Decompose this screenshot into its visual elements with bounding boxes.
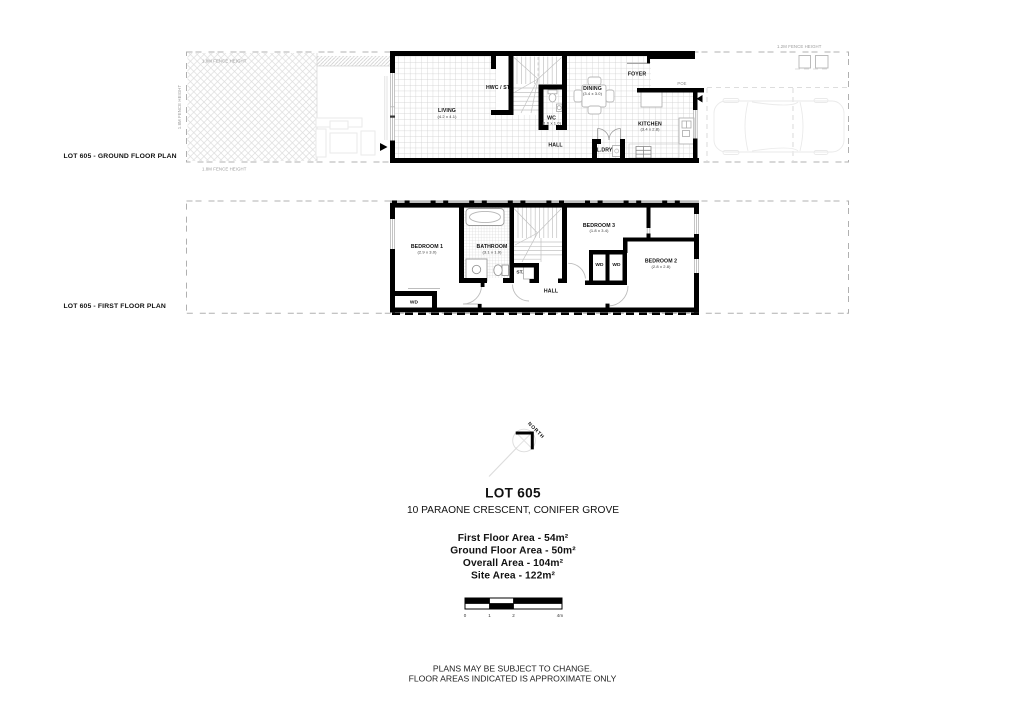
svg-text:(1.6 x 1.0): (1.6 x 1.0) [542, 121, 562, 126]
svg-text:Site Area - 122m²: Site Area - 122m² [471, 571, 555, 582]
svg-text:HALL: HALL [548, 143, 563, 149]
svg-text:FLOOR AREAS INDICATED IS APPRO: FLOOR AREAS INDICATED IS APPROXIMATE ONL… [409, 674, 617, 684]
svg-text:PLANS MAY BE SUBJECT TO CHANGE: PLANS MAY BE SUBJECT TO CHANGE. [433, 664, 592, 674]
svg-text:WD: WD [410, 300, 419, 306]
svg-text:LOT 605 - FIRST FLOOR PLAN: LOT 605 - FIRST FLOOR PLAN [64, 303, 166, 310]
svg-text:1.2M FENCE HEIGHT: 1.2M FENCE HEIGHT [777, 44, 822, 49]
svg-text:WD: WD [612, 262, 621, 268]
svg-text:(3.4 x 3.0): (3.4 x 3.0) [583, 91, 603, 96]
svg-text:1.8M FENCE HEIGHT: 1.8M FENCE HEIGHT [202, 167, 247, 172]
svg-text:(4.2 x 4.1): (4.2 x 4.1) [437, 114, 457, 119]
svg-text:First Floor Area - 54m²: First Floor Area - 54m² [458, 533, 569, 544]
svg-text:1: 1 [488, 613, 491, 618]
svg-text:1.8M FENCE HEIGHT: 1.8M FENCE HEIGHT [202, 59, 247, 64]
svg-text:HWC / ST.: HWC / ST. [486, 85, 512, 91]
svg-text:WD: WD [595, 262, 604, 268]
svg-text:Ground Floor Area - 50m²: Ground Floor Area - 50m² [450, 546, 576, 557]
svg-text:LOT 605 - GROUND FLOOR PLAN: LOT 605 - GROUND FLOOR PLAN [64, 153, 177, 160]
svg-text:ST.: ST. [516, 270, 523, 276]
svg-text:POE: POE [677, 81, 686, 86]
svg-text:10 PARAONE CRESCENT, CONIFER G: 10 PARAONE CRESCENT, CONIFER GROVE [407, 505, 619, 516]
svg-text:4m: 4m [557, 613, 564, 618]
svg-text:(1.8 x 3.4): (1.8 x 3.4) [589, 228, 609, 233]
svg-text:HALL: HALL [544, 289, 559, 295]
svg-text:(2.8 x 2.8): (2.8 x 2.8) [651, 264, 671, 269]
svg-text:L.DRY: L.DRY [597, 148, 613, 154]
svg-text:(3.4 x 2.8): (3.4 x 2.8) [640, 127, 660, 132]
svg-text:(3.1 x 1.9): (3.1 x 1.9) [482, 250, 502, 255]
svg-text:2: 2 [512, 613, 515, 618]
svg-text:0: 0 [464, 613, 467, 618]
svg-text:LOT 605: LOT 605 [485, 486, 541, 501]
svg-text:(2.9 x 3.0): (2.9 x 3.0) [417, 250, 437, 255]
svg-text:FOYER: FOYER [628, 72, 647, 78]
svg-text:Overall Area - 104m²: Overall Area - 104m² [463, 558, 564, 569]
svg-text:1.8M FENCE HEIGHT: 1.8M FENCE HEIGHT [177, 85, 182, 130]
